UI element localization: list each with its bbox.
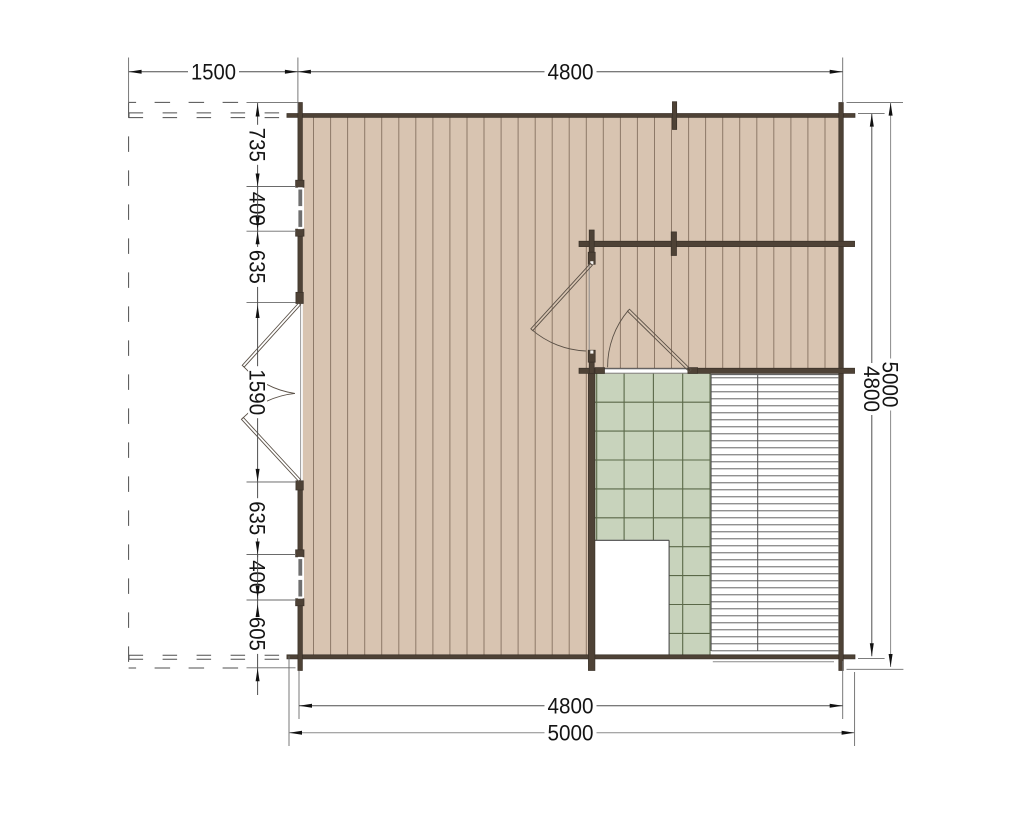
svg-text:5000: 5000 — [878, 362, 903, 408]
svg-text:4800: 4800 — [548, 694, 594, 719]
svg-text:635: 635 — [245, 250, 270, 284]
svg-text:1500: 1500 — [191, 60, 236, 85]
svg-text:4800: 4800 — [548, 60, 594, 85]
svg-text:605: 605 — [245, 617, 270, 651]
svg-text:1590: 1590 — [245, 369, 270, 415]
svg-text:635: 635 — [245, 501, 270, 535]
svg-text:5000: 5000 — [548, 721, 594, 746]
svg-text:735: 735 — [245, 128, 270, 162]
